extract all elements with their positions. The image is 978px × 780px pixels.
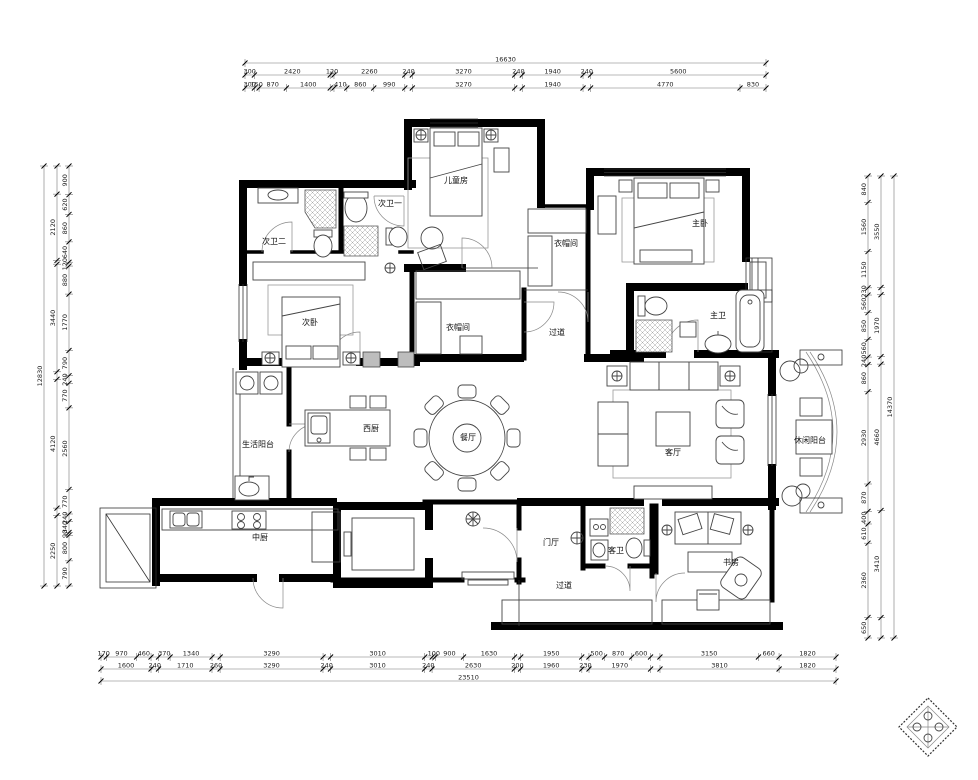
dimension-label: 800: [61, 542, 69, 554]
room-label-leisure-balcony: 休闲阳台: [794, 435, 826, 445]
service-balcony-fixtures: [235, 372, 282, 500]
dimension-label: 790: [61, 567, 69, 579]
dimension-label: 410: [334, 81, 346, 89]
room-label-second-bedroom: 次卧: [302, 317, 318, 327]
dimension-label: 240: [512, 68, 524, 76]
dimension-label: 620: [61, 198, 69, 210]
bath-two-fixtures: [258, 188, 336, 257]
dimension-label: 1970: [612, 662, 629, 670]
dimension-label: 850: [860, 320, 868, 332]
dimension-label: 200: [511, 662, 523, 670]
dimension-label: 23510: [458, 674, 479, 682]
dimension-label: 860: [61, 222, 69, 234]
dimension-label: 240: [321, 662, 333, 670]
dimension-label: 600: [635, 650, 647, 658]
dimension-label: 560: [860, 342, 868, 354]
dimension-label: 240: [149, 662, 161, 670]
dimension-label: 2120: [49, 219, 57, 236]
dimension-label: 970: [115, 650, 127, 658]
room-label-closet-master: 衣帽间: [554, 238, 578, 248]
master-bed: [598, 178, 766, 298]
dimension-label: 790: [61, 357, 69, 369]
dimension-label: 2560: [61, 440, 69, 457]
room-label-chinese-kitchen: 中厨: [252, 532, 268, 542]
dimension-label: 240: [860, 355, 868, 367]
room-label-service-balcony: 生活阳台: [242, 439, 274, 449]
room-label-kids-room: 儿童房: [444, 175, 468, 185]
room-label-master-bath: 主卫: [710, 310, 726, 320]
dimension-label: 2630: [465, 662, 482, 670]
dimension-label: 120: [61, 258, 69, 270]
dimension-label: 840: [860, 183, 868, 195]
dimension-label: 3010: [369, 662, 386, 670]
room-label-hallway-bottom: 过道: [556, 580, 572, 590]
room-label-guest-bath: 客卫: [608, 545, 624, 555]
master-bath-fixtures: [636, 290, 764, 353]
dimension-label: 870: [267, 81, 279, 89]
dimension-label: 240: [61, 373, 69, 385]
dimension-label: 2250: [49, 543, 57, 560]
dimension-label: 3550: [873, 223, 881, 240]
dimension-label: 1770: [61, 314, 69, 331]
dimension-label: 260: [210, 662, 222, 670]
dimension-label: 1820: [799, 650, 816, 658]
foyer-items: [462, 512, 583, 585]
dimension-label: 640: [61, 246, 69, 258]
dimension-label: 170: [97, 650, 109, 658]
dimension-label: 1600: [118, 662, 135, 670]
dimension-label: 770: [61, 389, 69, 401]
dimension-label: 1630: [481, 650, 498, 658]
dimension-label: 560: [860, 298, 868, 310]
dimension-label: 1400: [300, 81, 317, 89]
dimension-label: 650: [860, 622, 868, 634]
dimension-label: 1950: [543, 650, 560, 658]
dimension-label: 1710: [177, 662, 194, 670]
dimension-label: 660: [763, 650, 775, 658]
dimension-label: 860: [860, 372, 868, 384]
dimension-label: 2930: [860, 430, 868, 447]
dimension-label: 1970: [873, 317, 881, 334]
dimension-label: 610: [860, 527, 868, 539]
dimension-label: 900: [443, 650, 455, 658]
walkin-closet-cabinet: [416, 271, 520, 299]
walkin-closet-side: [416, 302, 441, 354]
dimension-label: 3150: [701, 650, 718, 658]
room-label-bath-two: 次卫二: [262, 236, 286, 246]
dimension-label: 500: [591, 650, 603, 658]
room-label-living-room: 客厅: [665, 447, 681, 457]
dimension-label: 3290: [263, 662, 280, 670]
dimension-label: 3440: [49, 310, 57, 327]
dimension-label: 4120: [49, 435, 57, 452]
dimension-label: 2420: [284, 68, 301, 76]
dimension-label: 2260: [361, 68, 378, 76]
dimension-label: 870: [612, 650, 624, 658]
room-label-master-bedroom: 主卧: [692, 218, 708, 228]
dimension-label: 1940: [544, 68, 561, 76]
dimension-label: 230: [860, 285, 868, 297]
balcony-set: [780, 359, 832, 506]
dimension-label: 230: [579, 662, 591, 670]
dimension-label: 240: [581, 68, 593, 76]
dimension-label: 1150: [860, 261, 868, 278]
dimension-label: 240: [402, 68, 414, 76]
room-label-west-kitchen: 西厨: [363, 424, 379, 433]
dimension-label: 860: [354, 81, 366, 89]
dimension-label: 4660: [873, 429, 881, 446]
dimension-label: 3410: [873, 556, 881, 573]
dimension-label: 830: [747, 81, 759, 89]
dimension-label: 400: [860, 511, 868, 523]
dimension-label: 2360: [860, 572, 868, 589]
dimension-label: 880: [61, 274, 69, 286]
dimension-label: 14370: [886, 397, 894, 418]
floor-plan-drawing: 1663030024201202260240327024019402405600…: [0, 0, 978, 780]
dimension-label: 16630: [495, 56, 516, 64]
dimension-label: 3270: [455, 68, 472, 76]
dimension-label: 370: [158, 650, 170, 658]
dimension-label: 300: [243, 68, 255, 76]
dimension-label: 1820: [799, 662, 816, 670]
dimension-label: 120: [326, 68, 338, 76]
room-label-dining-room: 餐厅: [460, 433, 476, 442]
dimension-label: 870: [860, 491, 868, 503]
room-label-study: 书房: [723, 557, 739, 567]
dimension-label: 1960: [543, 662, 560, 670]
dimension-label: 3010: [369, 650, 386, 658]
second-bed: [253, 262, 365, 367]
dimension-label: 460: [138, 650, 150, 658]
elevator-shaft: [333, 502, 433, 588]
dimension-label: 100: [428, 650, 440, 658]
master-closet-cabinet: [528, 209, 586, 233]
dimension-label: 12830: [36, 366, 44, 387]
dimension-label: 150: [251, 81, 263, 89]
dimension-label: 3290: [263, 650, 280, 658]
dimension-label: 240: [422, 662, 434, 670]
dimension-label: 90: [61, 530, 69, 538]
room-label-walk-in-closet: 衣帽间: [446, 322, 470, 332]
dimension-label: 990: [383, 81, 395, 89]
floor-plan-page: 1663030024201202260240327024019402405600…: [0, 0, 978, 780]
dimension-label: 4770: [657, 81, 674, 89]
dimension-label: 770: [61, 496, 69, 508]
master-closet-cabinet-side: [528, 236, 552, 286]
room-label-foyer: 门厅: [543, 537, 559, 547]
dimension-label: 1560: [860, 219, 868, 236]
kids-bed: [408, 128, 509, 270]
dimension-label: 5600: [670, 68, 687, 76]
room-label-hallway-middle: 过道: [549, 327, 565, 337]
dimension-label: 1340: [183, 650, 200, 658]
living-sofa-set: [598, 362, 744, 499]
study-furniture: [675, 512, 764, 610]
dimension-label: 3270: [455, 81, 472, 89]
dimension-label: 900: [61, 174, 69, 186]
room-label-bath-one: 次卫一: [378, 198, 402, 208]
dimension-label: 1940: [544, 81, 561, 89]
dimension-label: 3810: [711, 662, 728, 670]
compass-logo: [899, 698, 957, 756]
